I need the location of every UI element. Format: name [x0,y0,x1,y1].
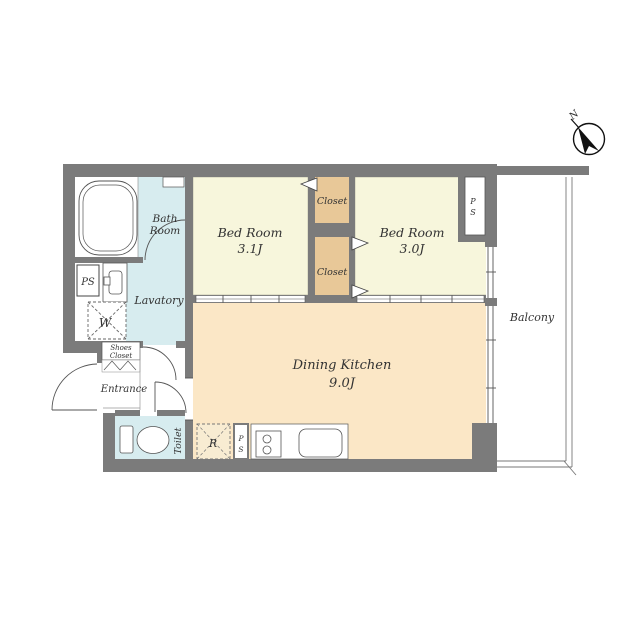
bedroom2-window-gap [486,247,496,298]
bedroom1-name-label: Bed Room [217,225,283,240]
sink-icon [299,429,342,457]
room-floors [75,177,575,461]
bath-room-label-line1: Bath [152,213,178,225]
washer-label: W [99,316,113,330]
wall-bath-bottom [75,257,143,263]
compass-circle [574,124,605,155]
dining-kitchen-name-label: Dining Kitchen [292,358,392,373]
wall-pillar [472,423,497,472]
bath-room-label-line2: Room [149,225,181,237]
bedroom2-size-label: 3.0J [400,241,426,256]
toilet-fixtures [120,426,169,454]
wall-balcony-top [497,166,589,175]
windows [486,247,496,423]
lavatory-label: Lavatory [133,294,184,307]
shoes-closet-label-line1: Shoes [110,344,132,352]
closet-top-label: Closet [317,196,348,207]
bedroom1-size-label: 3.1J [238,241,264,256]
wall-left [63,164,75,353]
wall-top [63,164,497,177]
washbasin-faucet-icon [104,277,110,285]
bedroom2-name-label: Bed Room [379,225,445,240]
shoes-closet-label-line2: Closet [110,352,133,360]
closet-bottom-label: Closet [317,267,348,278]
apartment-floor-plan: N Bath Room Lavatory PS W Shoes Closet E… [0,0,640,640]
wall-center-vertical [185,177,193,378]
entrance-label: Entrance [100,384,148,395]
ps-right-label-s: S [470,208,476,217]
ps-kitchen-label-s: S [238,445,243,454]
balcony-label: Balcony [509,311,555,324]
ps-right-niche [465,177,485,235]
toilet-bowl-icon [137,427,169,454]
wall-toilet-top-b [157,410,185,416]
wall-ps-left [458,177,465,242]
wall-bottom [103,459,497,472]
bathtub-icon [79,181,137,255]
ps-right-label-p: P [469,197,476,206]
ps-kitchen-label-p: P [237,434,244,443]
wall-right-upper [485,177,497,247]
toilet-tank-icon [120,426,133,453]
bath-counter [163,177,184,187]
dk-window-gap [486,306,496,423]
wall-hall-top-right [176,341,185,348]
dining-kitchen-size-label: 9.0J [329,376,356,391]
wall-toilet-top-a [115,410,140,416]
toilet-label: Toilet [173,427,184,454]
kitchen-fixtures [197,424,348,459]
ps-left-label: PS [80,277,95,288]
wall-right-chunk [485,298,497,306]
refrigerator-label: R [208,437,217,450]
wall-closet-left [308,177,315,303]
closet-bottom-floor [315,237,349,295]
stove-burner2 [263,446,271,454]
stove-burner1 [263,435,271,443]
wall-closet-separator [315,223,349,237]
washbasin-bowl-icon [109,271,122,294]
